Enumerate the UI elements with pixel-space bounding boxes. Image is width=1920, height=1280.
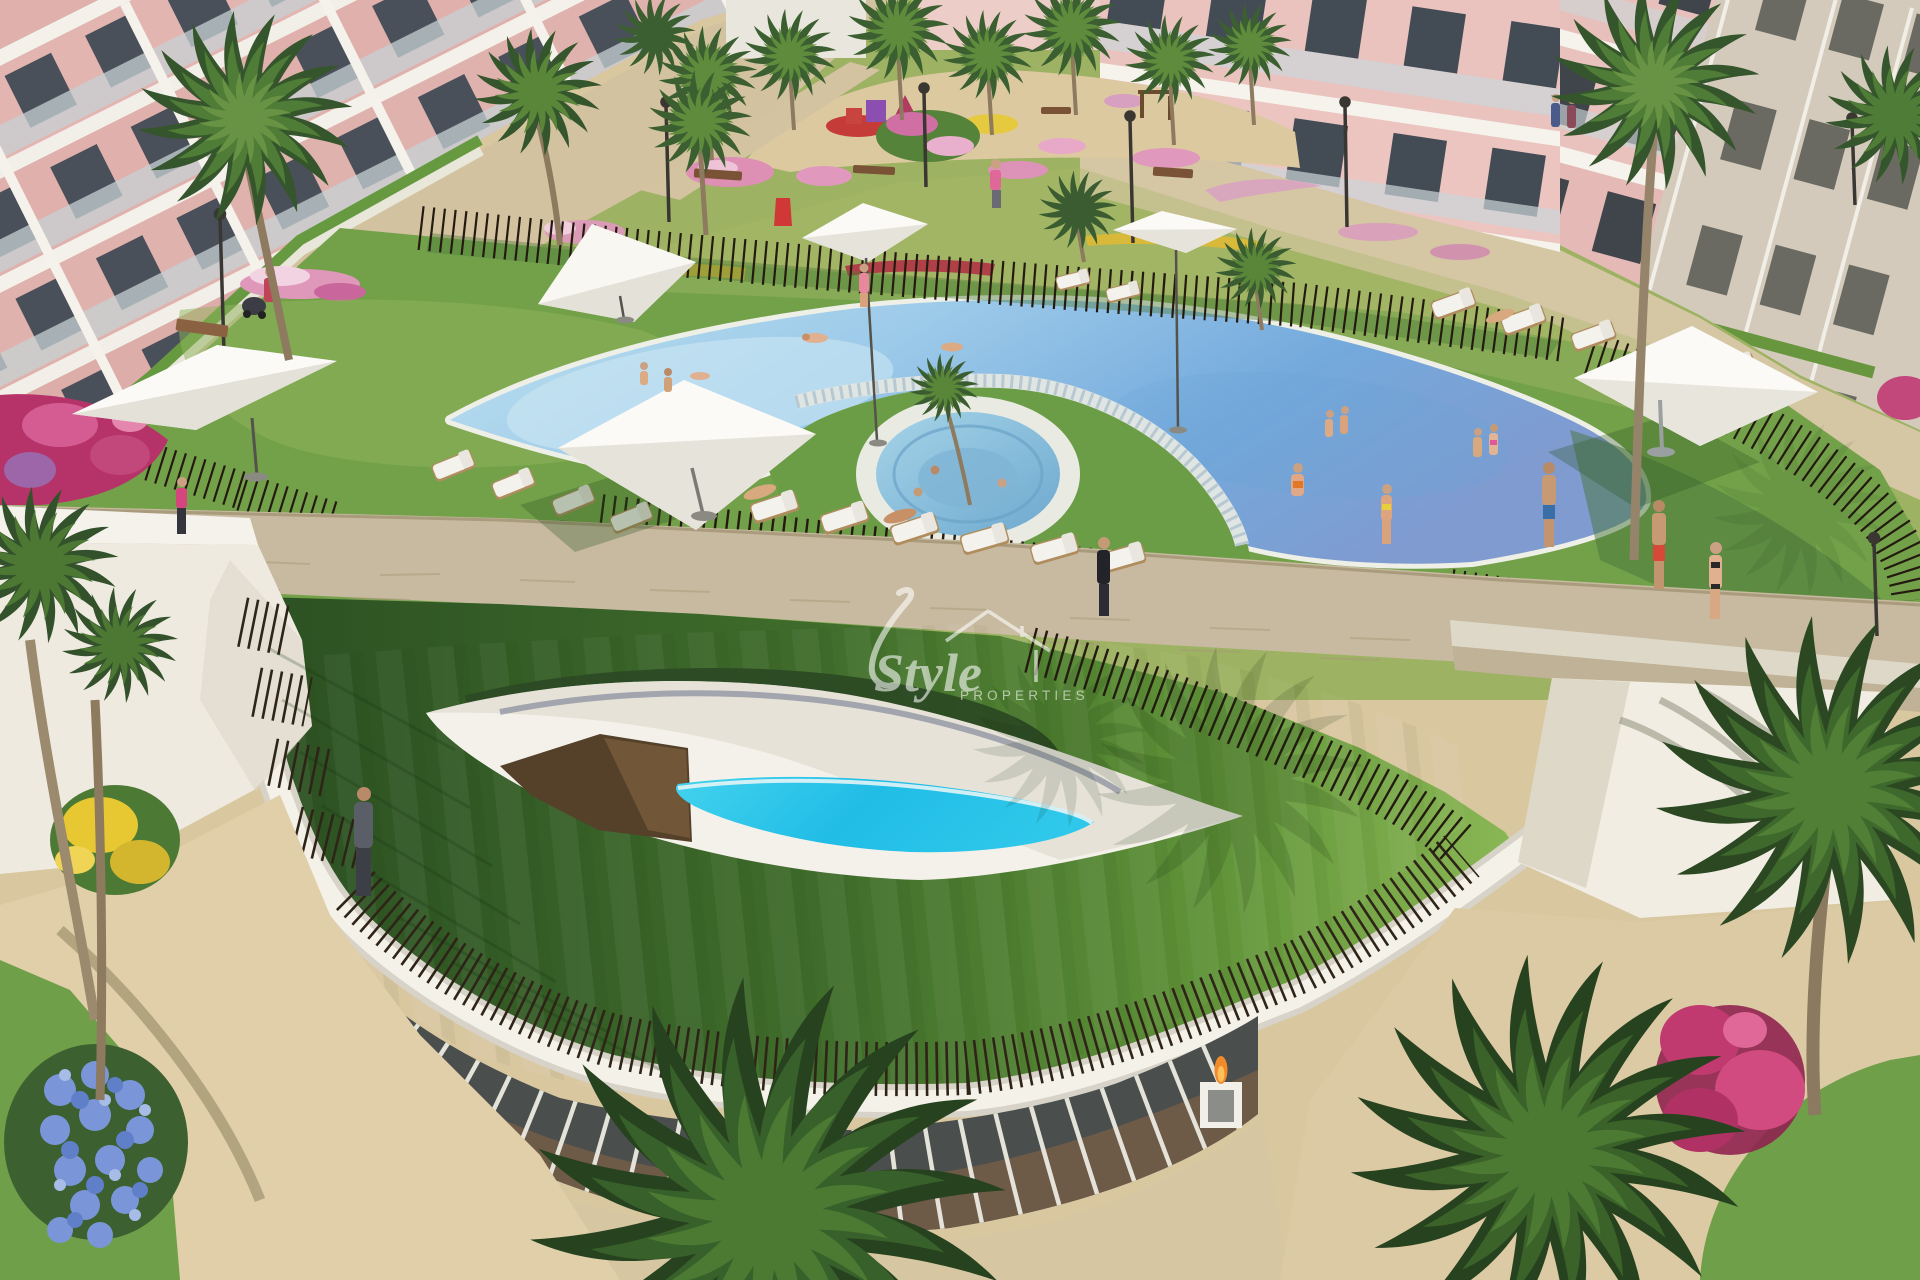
svg-text:PROPERTIES: PROPERTIES (960, 688, 1089, 703)
